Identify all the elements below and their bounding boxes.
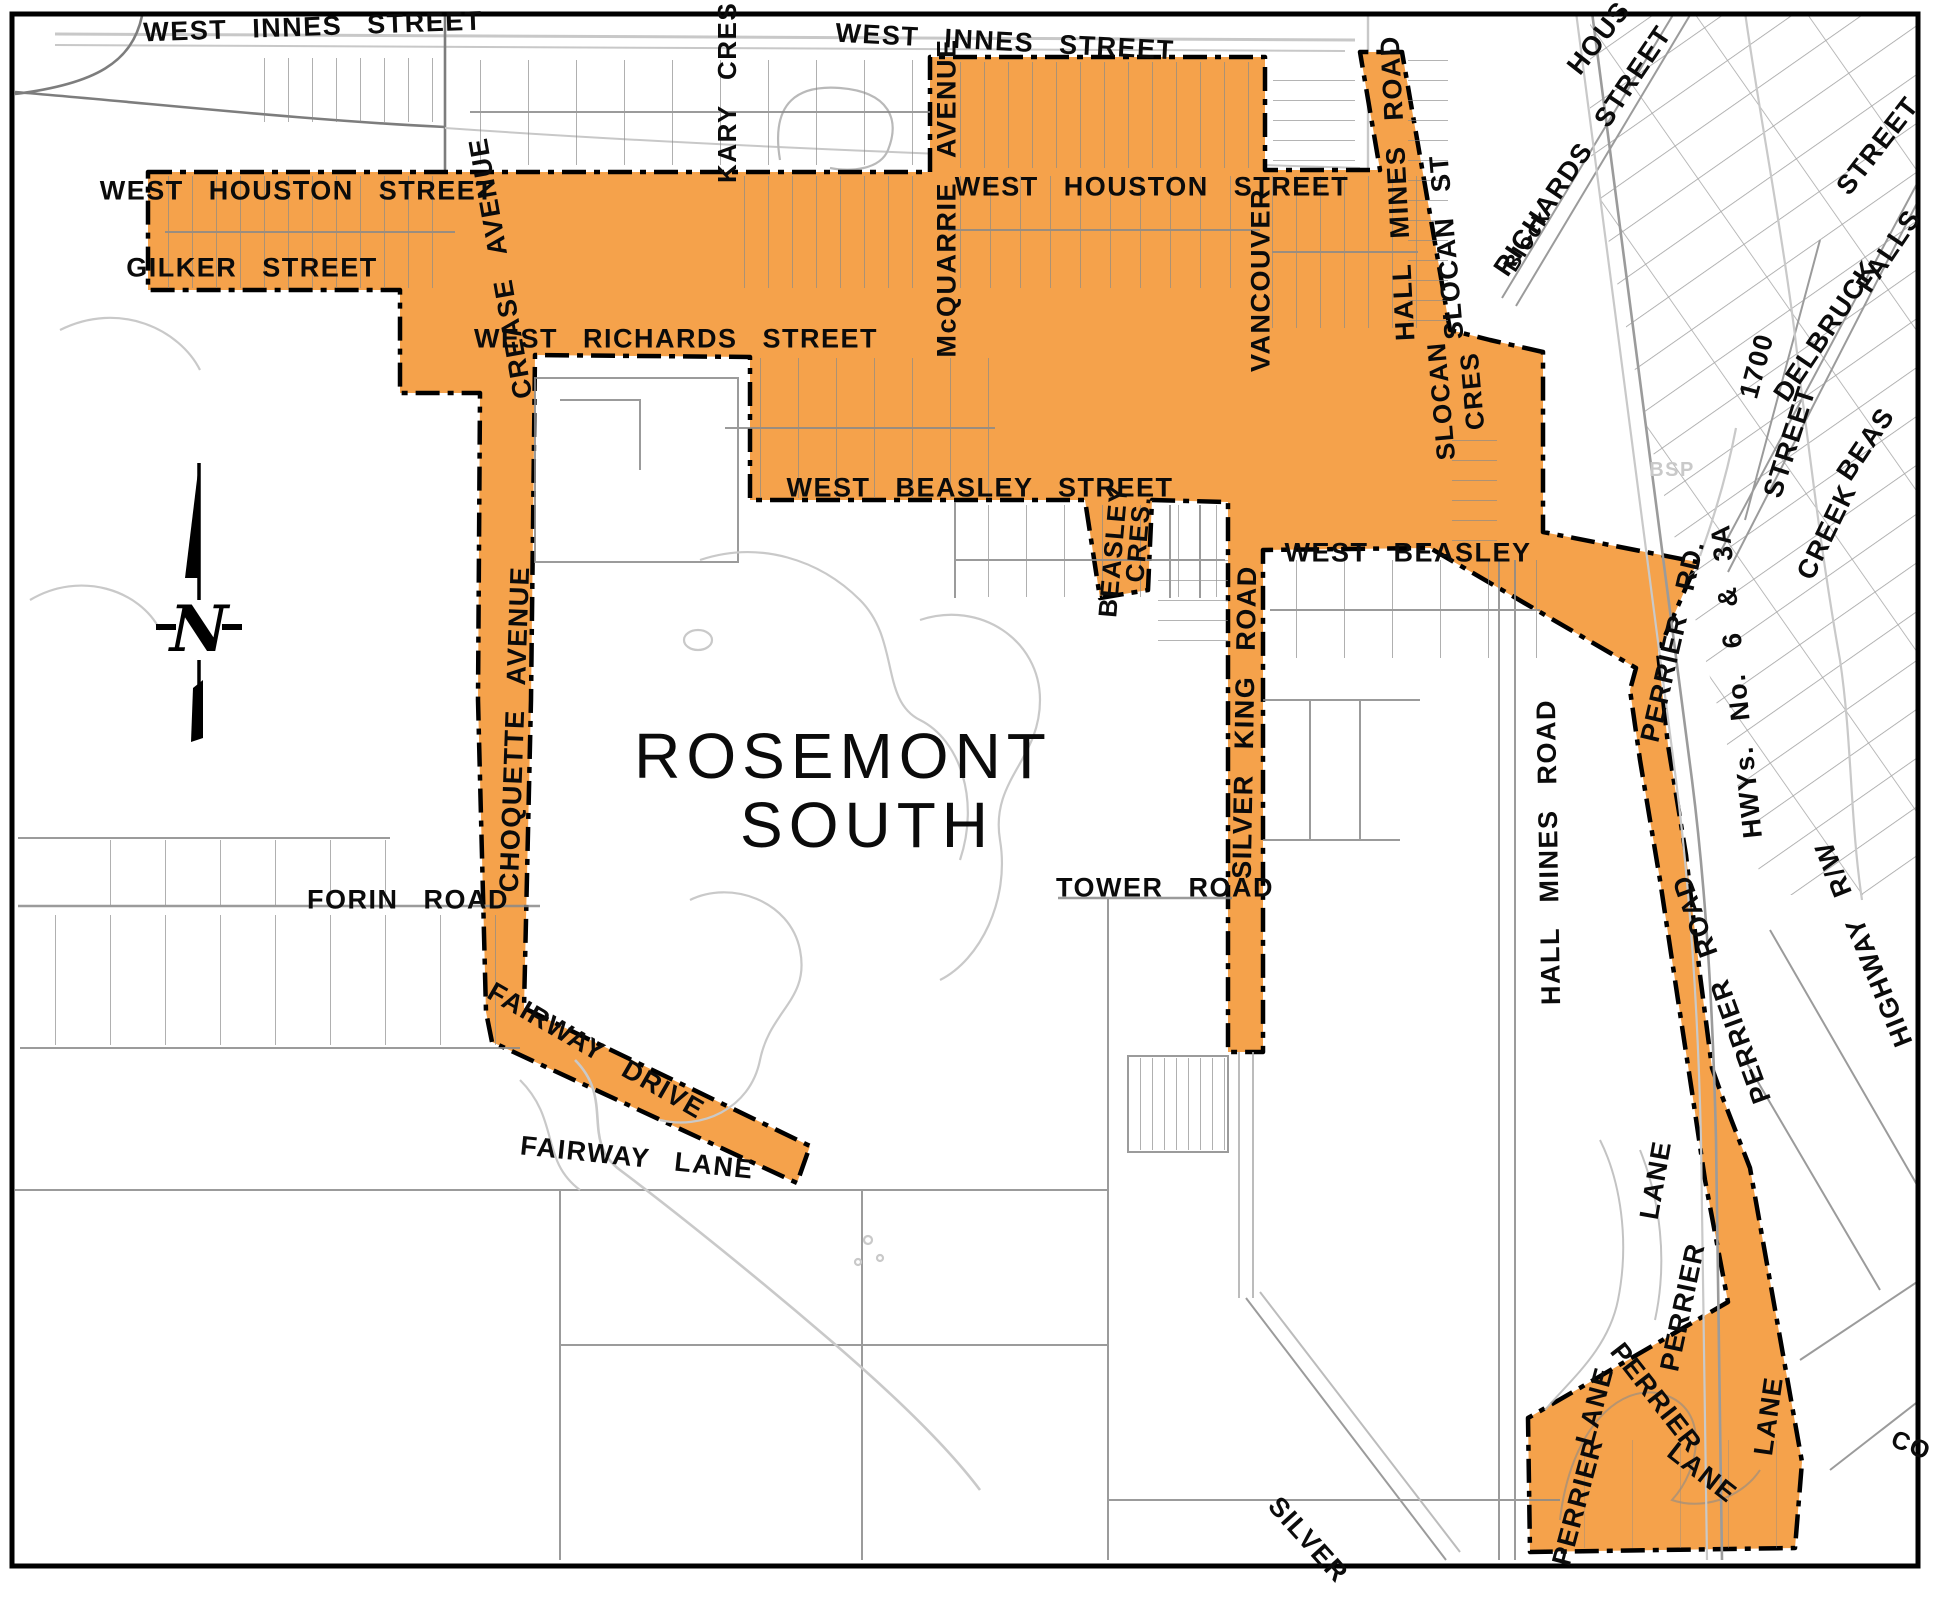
compass-n: N: [168, 592, 231, 667]
basemap: N: [0, 0, 1937, 1598]
map-canvas: N WEST INNES STREETWEST INNES STREETWEST…: [0, 0, 1937, 1598]
north-arrow: N: [156, 463, 242, 742]
